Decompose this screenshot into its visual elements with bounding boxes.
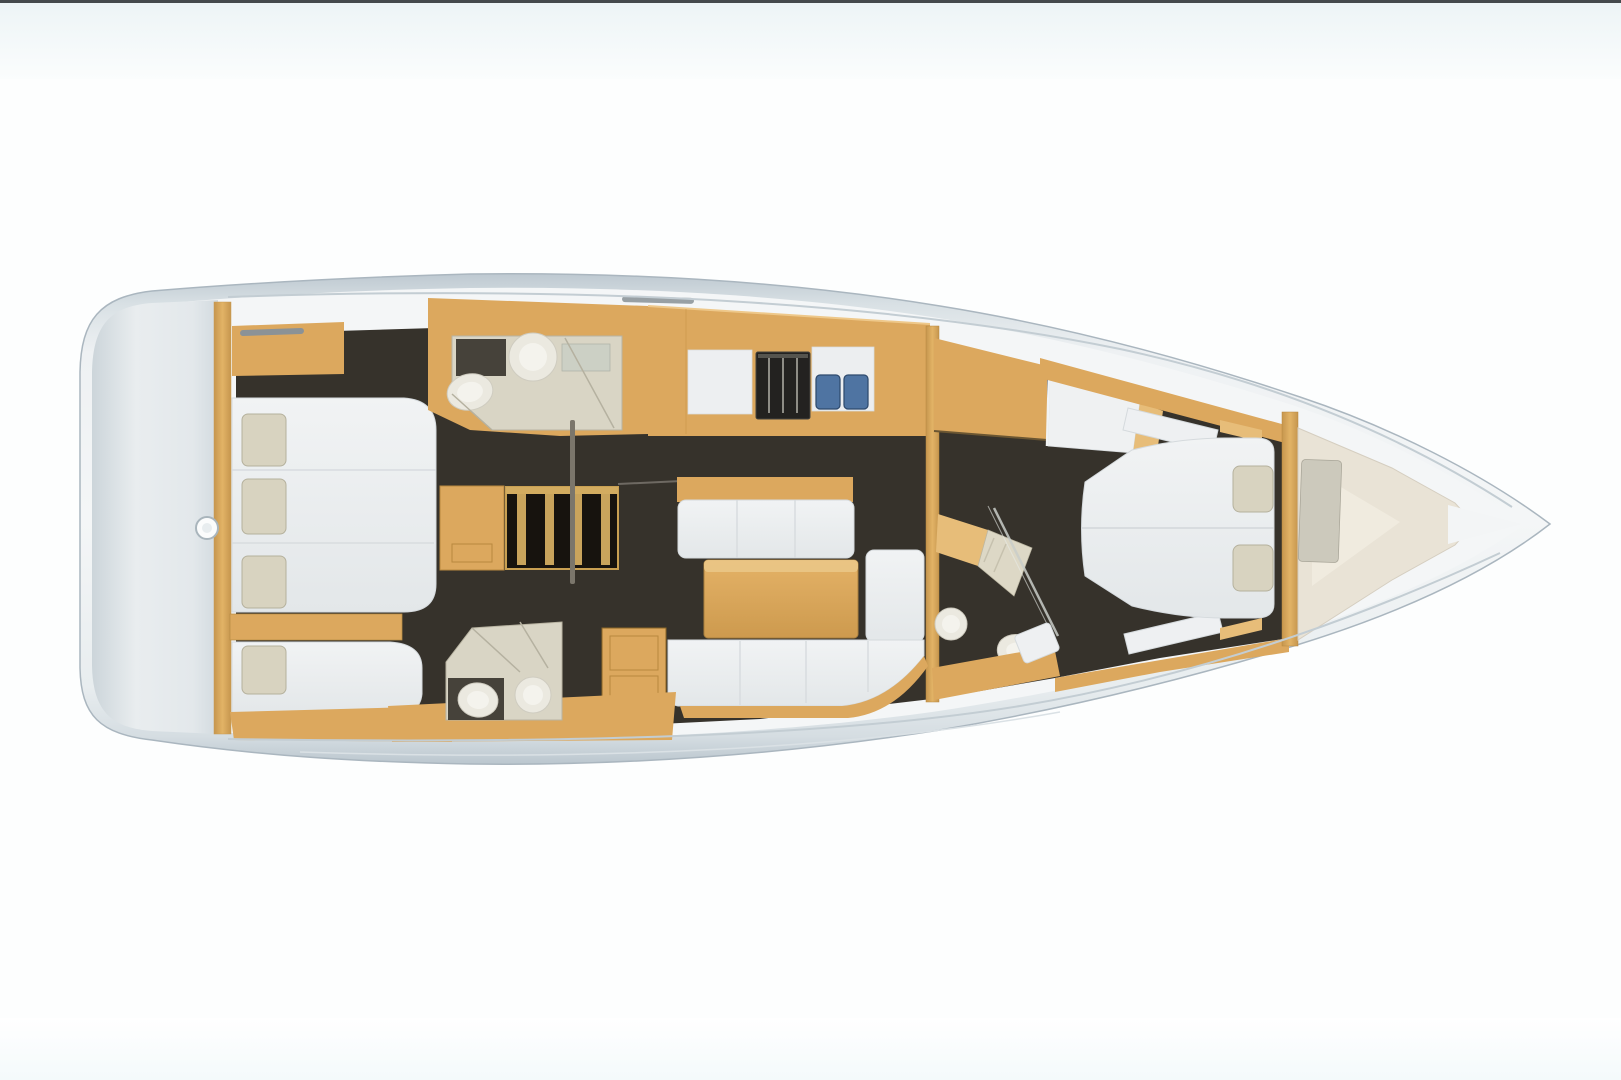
settee-right [866,550,924,642]
transom-panel [92,300,218,734]
cabin-divider [230,614,402,640]
scene [0,0,1621,1080]
stair-stringer [545,491,554,565]
mirror [562,344,610,371]
pillow [242,414,286,466]
settee-upper [678,500,854,558]
pillow [1233,466,1273,512]
stair-stringer [601,491,610,565]
galley-sink-right [844,375,868,409]
pillow [1233,545,1273,591]
pillow [242,479,286,534]
stair-top-rail [506,487,618,494]
stair-stringer [517,491,526,565]
porthole-glass [202,523,212,533]
settee-backrest [677,477,853,502]
counter-white [688,350,752,414]
sink-basin [523,685,543,705]
sink-basin [942,615,960,633]
galley-sink-left [816,375,840,409]
stair-landing [440,486,504,570]
aft-bulkhead [214,302,231,734]
mast-post [570,420,575,584]
anchor-locker [1298,459,1342,562]
shower-floor [456,339,506,376]
pillow [242,556,286,608]
pillow [242,646,286,694]
stove-handle [758,354,808,358]
table-top-edge [704,560,858,572]
head-aft-starboard [428,298,648,436]
forward-bulkhead [1282,412,1298,646]
sink-basin [519,343,547,371]
boat-floorplan [0,0,1621,1080]
